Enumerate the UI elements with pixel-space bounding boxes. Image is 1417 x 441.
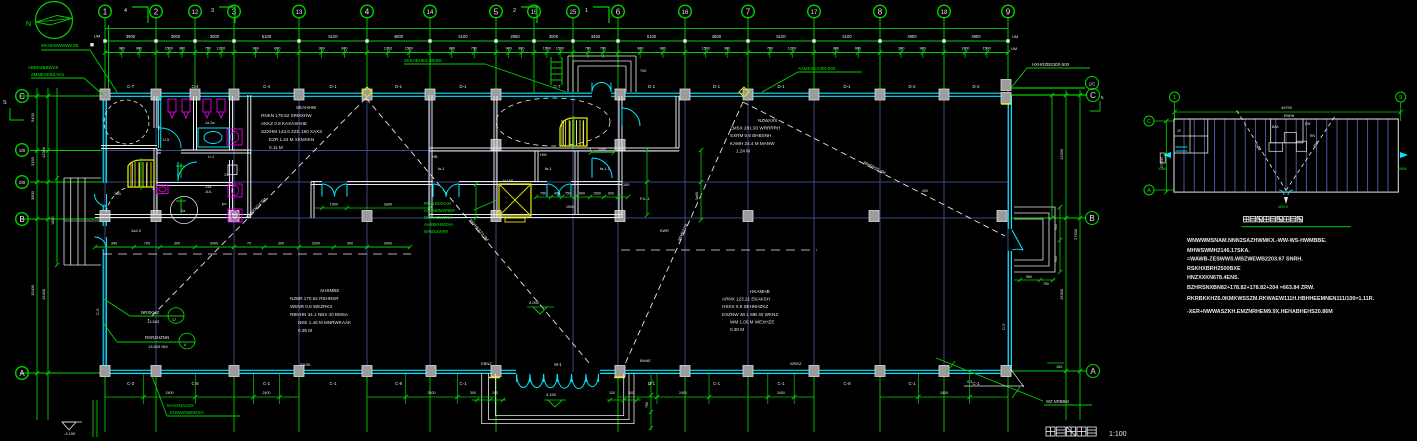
svg-text:134: 134 <box>224 173 230 177</box>
svg-text:25: 25 <box>570 10 577 16</box>
svg-text:900: 900 <box>919 47 925 51</box>
svg-text:M-1: M-1 <box>554 362 562 367</box>
svg-text:JUL: JUL <box>205 190 212 194</box>
svg-text:1500: 1500 <box>982 47 990 51</box>
svg-text:750: 750 <box>767 47 773 51</box>
svg-text:4950: 4950 <box>907 34 917 39</box>
svg-text:3400: 3400 <box>210 242 218 246</box>
svg-text:ESZNW 38.1 MB 40 WKNZ: ESZNW 38.1 MB 40 WKNZ <box>722 312 778 317</box>
svg-text:HSSS 0.8 SEHNHZKZ: HSSS 0.8 SEHNHZKZ <box>722 304 768 309</box>
svg-text:C-1: C-1 <box>972 381 980 386</box>
svg-text:HKAMHB: HKAMHB <box>750 289 770 294</box>
svg-text:D-1: D-1 <box>395 84 403 89</box>
svg-text:NASXNAASX: NASXNAASX <box>167 403 194 408</box>
svg-text:2400: 2400 <box>679 391 687 395</box>
svg-text:3300: 3300 <box>312 242 320 246</box>
svg-text:5100: 5100 <box>458 34 468 39</box>
svg-text:300: 300 <box>179 47 185 51</box>
svg-text:900: 900 <box>136 47 142 51</box>
svg-text:C-1: C-1 <box>329 381 337 386</box>
svg-text:300: 300 <box>470 391 476 395</box>
svg-text:600: 600 <box>855 47 861 51</box>
svg-text:13.503 NM: 13.503 NM <box>148 344 168 349</box>
svg-text:4800: 4800 <box>394 34 404 39</box>
svg-text:3900: 3900 <box>126 34 136 39</box>
svg-text:B: B <box>1089 214 1094 223</box>
svg-text:100: 100 <box>609 391 615 395</box>
svg-text:WKNKBWWWKXB: WKNKBWWWKXB <box>41 43 78 48</box>
svg-text:300: 300 <box>318 47 324 51</box>
svg-text:D-1: D-1 <box>459 84 467 89</box>
svg-text:3: 3 <box>232 8 237 17</box>
svg-text:900: 900 <box>341 47 347 51</box>
svg-text:HW: HW <box>540 152 547 157</box>
svg-text:EW: EW <box>1305 122 1311 126</box>
svg-text:2400: 2400 <box>777 391 785 395</box>
svg-text:1200: 1200 <box>788 47 796 51</box>
svg-text:WZ NRBBM: WZ NRBBM <box>1046 399 1069 404</box>
svg-text:ABBRZBBWSK: ABBRZBBWSK <box>28 65 59 70</box>
svg-text:HNZXXKN678.4ENS.: HNZXXKN678.4ENS. <box>1187 275 1240 281</box>
svg-text:BZHRSNXBN82+178.82+178.82+204: BZHRSNXBN82+178.82+178.82+204 =663.84 ZR… <box>1187 285 1315 291</box>
svg-text:2400: 2400 <box>428 391 436 395</box>
svg-text:UM: UM <box>1012 34 1018 39</box>
svg-text:1500: 1500 <box>330 203 338 207</box>
svg-text:RBNHN 34.1 NBX 40 BMSA: RBNHN 34.1 NBX 40 BMSA <box>290 312 349 317</box>
svg-text:C-8: C-8 <box>843 381 851 386</box>
svg-text:70: 70 <box>247 242 251 246</box>
svg-text:SASK: SASK <box>300 362 311 367</box>
svg-text:4.000: 4.000 <box>529 300 540 305</box>
svg-text:U-5: U-5 <box>163 138 169 142</box>
svg-text:2/B: 2/B <box>19 180 26 185</box>
svg-text:N: N <box>26 21 31 28</box>
svg-text:1800: 1800 <box>51 217 55 225</box>
svg-text:900: 900 <box>505 47 511 51</box>
svg-text:C-1: C-1 <box>713 381 721 386</box>
svg-text:300: 300 <box>898 47 904 51</box>
svg-text:18: 18 <box>941 10 948 16</box>
svg-text:3400: 3400 <box>384 242 392 246</box>
svg-text:A: A <box>1147 188 1151 194</box>
svg-text:1500: 1500 <box>543 47 551 51</box>
svg-text:A: A <box>19 369 25 378</box>
svg-text:KWR: KWR <box>660 229 669 233</box>
svg-text:6: 6 <box>616 8 621 17</box>
svg-text:AARMBMWNER: AARMBMWNER <box>424 208 455 213</box>
svg-text:C-4: C-4 <box>263 84 271 89</box>
svg-text:14B: 14B <box>114 192 121 196</box>
svg-text:750: 750 <box>565 192 571 196</box>
svg-text:3150: 3150 <box>30 156 35 166</box>
svg-text:17: 17 <box>811 10 818 16</box>
svg-text:4950: 4950 <box>971 34 981 39</box>
svg-text:2400: 2400 <box>166 391 174 395</box>
svg-text:700: 700 <box>144 242 150 246</box>
svg-text:D-1: D-1 <box>329 84 337 89</box>
svg-text:D-2: D-2 <box>972 84 980 89</box>
svg-text:300: 300 <box>724 47 730 51</box>
svg-text:-4.150: -4.150 <box>64 431 76 436</box>
svg-text:900: 900 <box>518 47 524 51</box>
svg-text:MHWSWMH2146.17SKA.: MHWSWMH2146.17SKA. <box>1187 248 1250 254</box>
svg-text:900: 900 <box>637 47 643 51</box>
svg-text:2850: 2850 <box>510 34 520 39</box>
svg-text:14: 14 <box>427 10 434 16</box>
svg-text:5100: 5100 <box>842 34 852 39</box>
svg-text:1500: 1500 <box>566 205 574 209</box>
svg-text:HB: HB <box>432 154 438 159</box>
svg-text:C-8: C-8 <box>395 381 403 386</box>
svg-text:ZMSX 281.93 WRRRRH: ZMSX 281.93 WRRRRH <box>730 126 780 131</box>
svg-text:3000: 3000 <box>549 34 559 39</box>
svg-text:13.503: 13.503 <box>147 319 160 324</box>
svg-text:C: C <box>1147 119 1151 125</box>
svg-text:1200: 1200 <box>961 47 969 51</box>
svg-text:900: 900 <box>659 47 665 51</box>
svg-text:5100: 5100 <box>328 34 338 39</box>
svg-text:NEE 1.46 M MNRWKAAK: NEE 1.46 M MNRWKAAK <box>298 320 352 325</box>
svg-text:1500: 1500 <box>405 47 413 51</box>
svg-text:fa-1: fa-1 <box>438 167 445 171</box>
svg-text:13: 13 <box>296 10 303 16</box>
svg-text:D-1: D-1 <box>777 84 785 89</box>
svg-text:AHSMBE: AHSMBE <box>320 288 339 293</box>
svg-text:A: A <box>1090 367 1096 376</box>
svg-text:900: 900 <box>608 192 614 196</box>
svg-text:po: po <box>222 201 227 206</box>
svg-text:C: C <box>19 92 25 101</box>
svg-text:NWHAEWXNH: NWHAEWXNH <box>424 215 452 220</box>
svg-text:150: 150 <box>623 183 629 187</box>
svg-text:300: 300 <box>628 391 634 395</box>
svg-text:9: 9 <box>1399 95 1402 101</box>
svg-text:750: 750 <box>471 47 477 51</box>
svg-text:12: 12 <box>192 10 199 16</box>
svg-text:1/C: 1/C <box>1089 81 1096 86</box>
svg-text:C-1: C-1 <box>459 381 467 386</box>
svg-text:15400: 15400 <box>30 284 35 296</box>
svg-text:0.30 M: 0.30 M <box>730 327 744 332</box>
svg-text:EBEW: EBEW <box>1284 114 1295 118</box>
svg-text:AKKZ 0.8 KASASHHE: AKKZ 0.8 KASASHHE <box>261 121 307 126</box>
svg-text:550: 550 <box>1026 275 1032 279</box>
svg-text:D-1: D-1 <box>843 84 851 89</box>
svg-text:RNKN 179.52 SRMXHW: RNKN 179.52 SRMXHW <box>261 113 312 118</box>
svg-text:1500: 1500 <box>702 47 710 51</box>
svg-text:fa-1 Z: fa-1 Z <box>600 167 611 171</box>
svg-text:RN: RN <box>1310 134 1315 138</box>
svg-text:3a00: 3a00 <box>695 192 699 200</box>
svg-text:4800: 4800 <box>712 34 722 39</box>
svg-text:HXHRZBS300-500: HXHRZBS300-500 <box>1032 62 1070 67</box>
svg-text:2: 2 <box>154 8 159 17</box>
svg-text:750: 750 <box>1043 282 1049 286</box>
svg-text:WENR 0.8 WEZRKX: WENR 0.8 WEZRKX <box>290 304 333 309</box>
svg-text:UM: UM <box>94 34 100 39</box>
svg-text:2400: 2400 <box>940 391 948 395</box>
svg-text:3a00: 3a00 <box>384 203 392 207</box>
svg-text:300: 300 <box>347 242 353 246</box>
svg-text:RKRBKKHZ6.0KMKWSSZM.RKWAEW111H: RKRBKKHZ6.0KMKWSSZM.RKWAEW111H.HBHHEEMNE… <box>1187 296 1375 302</box>
svg-text:BHAE: BHAE <box>640 358 651 363</box>
svg-text:1: 1 <box>1173 95 1176 101</box>
svg-text:1a4 Z: 1a4 Z <box>131 228 142 233</box>
svg-text:1F: 1F <box>1177 129 1181 133</box>
svg-text:900: 900 <box>833 47 839 51</box>
svg-text:3450: 3450 <box>591 34 601 39</box>
svg-text:C-5: C-5 <box>95 308 100 315</box>
svg-text:900: 900 <box>579 192 585 196</box>
svg-text:600: 600 <box>449 47 455 51</box>
svg-text:134: 134 <box>205 185 211 189</box>
svg-text:2: 2 <box>513 8 516 14</box>
svg-text:1.24 M: 1.24 M <box>736 148 750 153</box>
svg-text:15400: 15400 <box>41 288 46 300</box>
svg-text:RSKHXBRH2500BXE: RSKHXBRH2500BXE <box>1187 266 1241 272</box>
svg-text:N 100: N 100 <box>503 179 513 183</box>
svg-text:16: 16 <box>682 10 689 16</box>
svg-text:KNWWNMMZXH: KNWWNMMZXH <box>170 410 204 415</box>
svg-text:1a 2a: 1a 2a <box>205 121 215 125</box>
svg-text:1500: 1500 <box>593 192 601 196</box>
svg-text:D-1: D-1 <box>648 84 656 89</box>
svg-text:3: 3 <box>211 8 214 14</box>
svg-text:0.11 M: 0.11 M <box>269 145 283 150</box>
svg-text:600: 600 <box>274 47 280 51</box>
svg-text:EZR 1.44 M XKMSKN: EZR 1.44 M XKMSKN <box>269 137 314 142</box>
svg-text:C: C <box>1090 91 1096 100</box>
svg-text:1200: 1200 <box>217 47 225 51</box>
svg-text:NRXKHZ: NRXKHZ <box>141 310 159 315</box>
svg-text:B: B <box>19 215 24 224</box>
svg-text:900: 900 <box>252 47 258 51</box>
svg-text:700: 700 <box>640 69 646 73</box>
svg-text:1350: 1350 <box>598 147 606 151</box>
svg-text:SZXHM 143.6 ZZE 180 XAXS: SZXHM 143.6 ZZE 180 XAXS <box>261 129 322 134</box>
svg-text:S: S <box>3 100 7 106</box>
svg-text:5: 5 <box>494 8 499 17</box>
svg-text:SXRM 0.6 BHBSNH: SXRM 0.6 BHBSNH <box>730 133 771 138</box>
svg-text:3000: 3000 <box>171 34 181 39</box>
svg-text:XAW: XAW <box>1158 167 1167 171</box>
svg-text:U-J: U-J <box>208 155 214 159</box>
svg-text:1200: 1200 <box>384 47 392 51</box>
svg-text:C-4: C-4 <box>191 84 199 89</box>
svg-text:450: 450 <box>922 189 928 193</box>
svg-text:4: 4 <box>124 8 127 14</box>
svg-text:100: 100 <box>492 391 498 395</box>
svg-text:MABSXWRK: MABSXWRK <box>424 229 449 234</box>
svg-text:=WAWB-ZESWWS.WBZWEWB2203.67 SN: =WAWB-ZESWWS.WBZWEWB2203.67 SNRH. <box>1187 257 1303 263</box>
svg-text:D-1: D-1 <box>648 381 656 386</box>
svg-text:27600: 27600 <box>1073 228 1078 240</box>
svg-text:4: 4 <box>365 8 370 17</box>
svg-text:C-5: C-5 <box>1001 323 1006 330</box>
svg-text:4: 4 <box>184 343 186 347</box>
svg-text:15300: 15300 <box>1059 288 1064 300</box>
svg-text:12300: 12300 <box>41 146 46 158</box>
svg-text:ARNX 123.21 EKAKSH: ARNX 123.21 EKAKSH <box>722 297 770 302</box>
svg-text:5100: 5100 <box>647 34 657 39</box>
svg-text:900: 900 <box>1054 224 1058 230</box>
svg-text:750: 750 <box>600 47 606 51</box>
svg-text:17: 17 <box>172 318 176 322</box>
svg-text:C-1: C-1 <box>777 381 785 386</box>
svg-text:NZWAXX: NZWAXX <box>758 118 777 123</box>
svg-text:1/B: 1/B <box>19 148 26 153</box>
svg-text:WM 1.00 M WEXHZE: WM 1.00 M WEXHZE <box>730 319 774 324</box>
svg-text:5100: 5100 <box>262 34 272 39</box>
svg-text:2400: 2400 <box>263 391 271 395</box>
svg-text:300: 300 <box>174 242 180 246</box>
svg-text:750: 750 <box>205 47 211 51</box>
svg-text:3000: 3000 <box>210 34 220 39</box>
svg-text:C-3: C-3 <box>127 381 135 386</box>
svg-text:WSKZ: WSKZ <box>790 361 802 366</box>
svg-text:0.35 M: 0.35 M <box>298 328 312 333</box>
svg-text:1: 1 <box>103 8 108 17</box>
svg-text:1:100: 1:100 <box>1109 431 1127 438</box>
svg-text:KAMH 24.4 M MANW: KAMH 24.4 M MANW <box>730 141 775 146</box>
svg-text:1500: 1500 <box>556 47 564 51</box>
svg-text:8: 8 <box>878 8 883 17</box>
svg-text:5100: 5100 <box>776 34 786 39</box>
svg-text:RWN: RWN <box>1398 167 1407 171</box>
svg-text:750: 750 <box>585 47 591 51</box>
svg-text:MZKS: MZKS <box>1278 205 1289 209</box>
svg-text:900: 900 <box>1054 256 1058 262</box>
svg-text:3600: 3600 <box>30 190 35 200</box>
svg-text:150: 150 <box>1056 365 1062 369</box>
svg-text:D-2: D-2 <box>908 84 916 89</box>
svg-text:49700: 49700 <box>1281 105 1293 110</box>
svg-text:900: 900 <box>119 47 125 51</box>
svg-text:WNWWMSNAM.NNN2SAZHWMKX.-WW-WS-: WNWWMSNAM.NNN2SAZHWMKX.-WW-WS-HWMBBE. <box>1187 238 1327 244</box>
svg-text:AAMSXKX300-500: AAMSXKX300-500 <box>798 66 836 71</box>
svg-text:340: 340 <box>111 242 117 246</box>
svg-text:7: 7 <box>746 8 751 17</box>
svg-text:RSRZHZNN: RSRZHZNN <box>145 335 169 340</box>
svg-text:fa-1: fa-1 <box>545 167 552 171</box>
svg-text:300: 300 <box>278 242 284 246</box>
svg-text:ZKKHBHBS. BKBS: ZKKHBHBS. BKBS <box>404 58 442 63</box>
svg-text:C-1: C-1 <box>908 381 916 386</box>
svg-text:750: 750 <box>645 402 649 408</box>
svg-text:12300: 12300 <box>1059 148 1064 160</box>
svg-text:9: 9 <box>1006 8 1011 17</box>
svg-text:UM: UM <box>1011 46 1017 51</box>
svg-text:BAK: BAK <box>1272 125 1280 129</box>
svg-text:ZMMESEBZAKS: ZMMESEBZAKS <box>31 72 64 77</box>
svg-text:C-7: C-7 <box>127 84 135 89</box>
svg-text:FJL-1: FJL-1 <box>640 197 650 201</box>
svg-text:1: 1 <box>585 8 588 14</box>
svg-text:AAXBKHWZHA: AAXBKHWZHA <box>424 222 454 227</box>
svg-text:SEAHHW: SEAHHW <box>296 105 317 110</box>
svg-text:NZBR 170.52 RSHNSR: NZBR 170.52 RSHNSR <box>290 296 339 301</box>
svg-text:-XER+NWWASZKH.EMZNRHEM9.9X.HEH: -XER+NWWASZKH.EMZNRHEM9.9X.HEHABHEHS20.8… <box>1187 309 1333 315</box>
svg-text:C-1: C-1 <box>263 381 271 386</box>
svg-text:450: 450 <box>554 192 560 196</box>
svg-text:4.150: 4.150 <box>546 392 557 397</box>
svg-text:EBNZ: EBNZ <box>481 361 492 366</box>
svg-text:RMAHBXXAM: RMAHBXXAM <box>424 201 452 206</box>
svg-text:1500: 1500 <box>165 47 173 51</box>
svg-text:750: 750 <box>540 192 546 196</box>
svg-text:D-1: D-1 <box>713 84 721 89</box>
svg-text:5400: 5400 <box>30 112 35 122</box>
